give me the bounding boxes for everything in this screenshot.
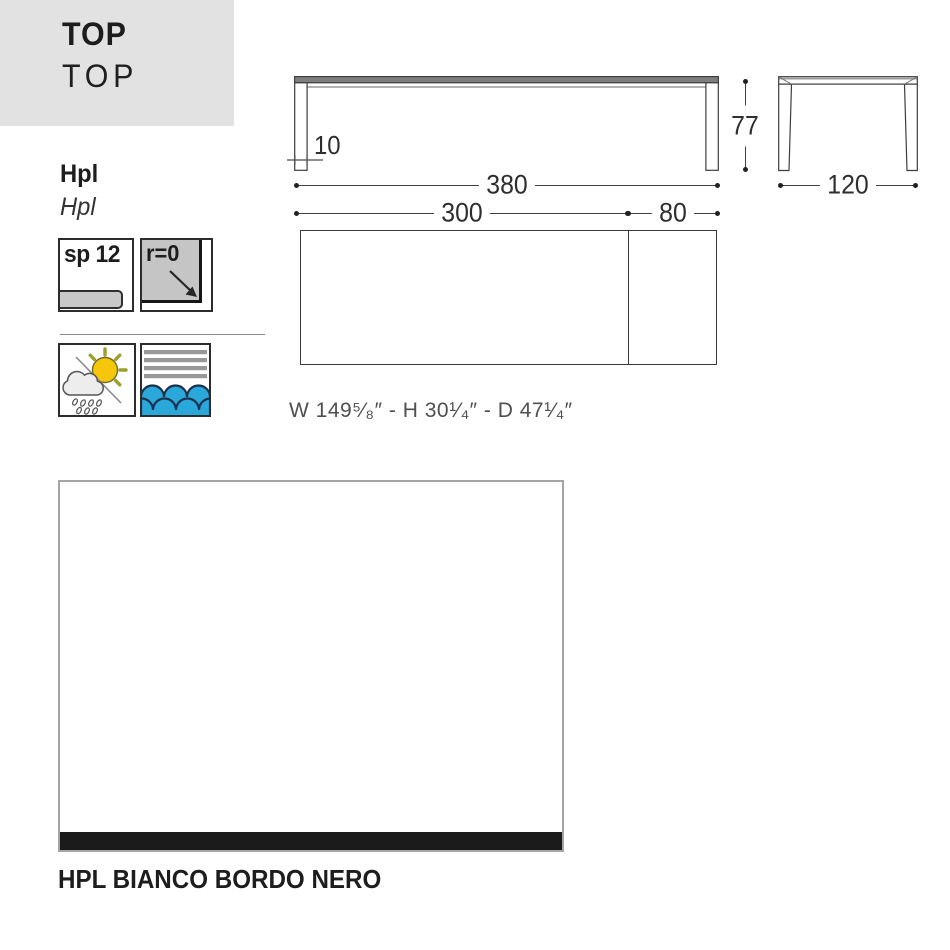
dim-dot	[626, 211, 631, 216]
spec-sheet: TOP TOP Hpl Hpl sp 12 r=0	[0, 0, 950, 950]
wave-top-icon	[142, 386, 209, 416]
weather-resistant-box	[58, 343, 136, 417]
dim-total-length: 380	[296, 178, 718, 192]
side-view-top-edge	[295, 77, 719, 83]
finish-label: HPL BIANCO BORDO NERO	[58, 864, 381, 895]
dim-height: 77	[738, 80, 752, 171]
dim-dot	[715, 211, 720, 216]
sun-rain-icon	[60, 345, 134, 415]
swatch-black-edge	[60, 832, 562, 850]
dim-main-length: 300	[296, 206, 628, 220]
dim-dot	[294, 211, 299, 216]
thickness-label: sp 12	[64, 241, 120, 269]
thickness-spec-box: sp 12	[58, 238, 134, 312]
material-name-alt: Hpl	[60, 193, 96, 222]
dim-dot	[294, 183, 299, 188]
dim-top-thickness-label: 10	[314, 130, 341, 161]
dim-depth-label: 120	[820, 170, 876, 198]
corner-arrow-icon	[166, 266, 202, 302]
dim-dot	[778, 183, 783, 188]
top-view-extension-divider	[628, 231, 630, 364]
thickness-bar-icon	[60, 290, 123, 309]
end-view-drawing	[778, 76, 918, 172]
waves-icon	[142, 345, 209, 415]
material-name: Hpl	[60, 160, 98, 189]
top-view-drawing	[300, 230, 717, 365]
dim-depth: 120	[780, 178, 916, 192]
rain-drops-icon	[72, 398, 103, 415]
end-view-right-leg	[905, 84, 918, 170]
dim-dot	[913, 183, 918, 188]
radius-label: r=0	[146, 240, 179, 267]
dim-total-length-label: 380	[479, 170, 535, 198]
header-panel: TOP TOP	[0, 0, 234, 126]
water-resistant-box	[140, 343, 211, 417]
radius-spec-box: r=0	[140, 238, 213, 312]
finish-swatch	[58, 480, 564, 852]
dim-dot	[743, 167, 748, 172]
dim-extension-length: 80	[628, 206, 718, 220]
page-title: TOP	[62, 16, 127, 53]
end-view-left-leg	[779, 84, 792, 170]
dim-height-label: 77	[730, 105, 759, 146]
side-view-left-leg	[295, 83, 307, 171]
side-view-drawing	[294, 76, 719, 172]
dim-main-length-label: 300	[434, 198, 490, 226]
stripes-icon	[144, 350, 207, 378]
side-view-right-leg	[706, 83, 718, 171]
page-subtitle: TOP	[62, 58, 138, 95]
dim-dot	[743, 79, 748, 84]
imperial-dimensions: W 149⁵⁄₈″ - H 30¹⁄₄″ - D 47¹⁄₄″	[289, 399, 573, 423]
dim-extension-length-label: 80	[652, 198, 694, 226]
spec-divider	[60, 334, 265, 335]
dim-dot	[715, 183, 720, 188]
